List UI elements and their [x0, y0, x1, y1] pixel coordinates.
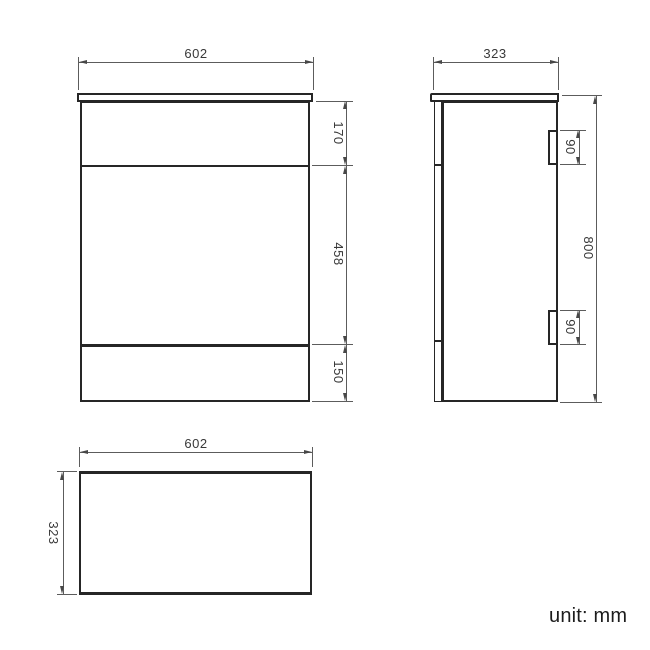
- side-depth-dim-label: 323: [475, 47, 515, 61]
- side-door-joint-upper: [434, 164, 442, 166]
- arrow-down-icon: [593, 394, 597, 402]
- arrow-down-icon: [343, 336, 347, 344]
- front-section-dim-label-170: 170: [331, 116, 345, 150]
- hinge-top-ext-1: [560, 130, 586, 131]
- plan-width-dim-label: 602: [176, 437, 216, 451]
- unit-note: unit: mm: [549, 605, 627, 628]
- hinge-bottom: [548, 310, 558, 345]
- front-height-dim-line: [346, 101, 347, 402]
- front-cabinet-body: [80, 101, 310, 402]
- arrow-left-icon: [79, 60, 87, 64]
- front-width-dim-line: [79, 62, 313, 63]
- arrow-right-icon: [305, 60, 313, 64]
- front-divider-upper: [82, 165, 308, 167]
- arrow-left-icon: [434, 60, 442, 64]
- arrow-up-icon: [343, 101, 347, 109]
- front-width-dim-label: 602: [176, 47, 216, 61]
- hinge-bottom-ext-1: [560, 310, 586, 311]
- hinge-bottom-ext-2: [560, 344, 586, 345]
- arrow-down-icon: [343, 157, 347, 165]
- technical-drawing-canvas: 602 170 458 150 323: [0, 0, 650, 650]
- plan-depth-ext-bottom: [57, 594, 77, 595]
- arrow-up-icon: [593, 96, 597, 104]
- plan-width-dim-line: [80, 452, 312, 453]
- side-door-joint-lower: [434, 340, 442, 342]
- plan-depth-dim-line: [63, 472, 64, 594]
- front-section-dim-label-458: 458: [331, 237, 345, 271]
- hinge-top: [548, 130, 558, 165]
- front-section-dim-label-150: 150: [331, 355, 345, 389]
- hinge-bottom-dim-label: 90: [563, 313, 577, 341]
- arrow-right-icon: [550, 60, 558, 64]
- side-height-dim-line: [596, 95, 597, 403]
- arrow-down-icon: [60, 586, 64, 594]
- arrow-right-icon: [304, 450, 312, 454]
- side-depth-ext-right: [558, 57, 559, 90]
- arrow-up-icon: [60, 472, 64, 480]
- side-depth-dim-line: [434, 62, 558, 63]
- plan-outline: [79, 471, 312, 595]
- side-cabinet-body: [442, 101, 558, 402]
- side-height-dim-label: 800: [581, 231, 595, 265]
- arrow-up-icon: [343, 166, 347, 174]
- side-door-edge: [434, 101, 442, 402]
- arrow-up-icon: [343, 345, 347, 353]
- plan-width-ext-right: [312, 447, 313, 467]
- front-divider-lower: [82, 344, 308, 347]
- hinge-top-ext-2: [560, 164, 586, 165]
- hinge-top-dim-label: 90: [563, 133, 577, 161]
- arrow-left-icon: [80, 450, 88, 454]
- front-width-ext-right: [313, 57, 314, 90]
- front-height-ext-1: [316, 101, 353, 102]
- arrow-down-icon: [343, 393, 347, 401]
- plan-depth-dim-label: 323: [46, 516, 60, 550]
